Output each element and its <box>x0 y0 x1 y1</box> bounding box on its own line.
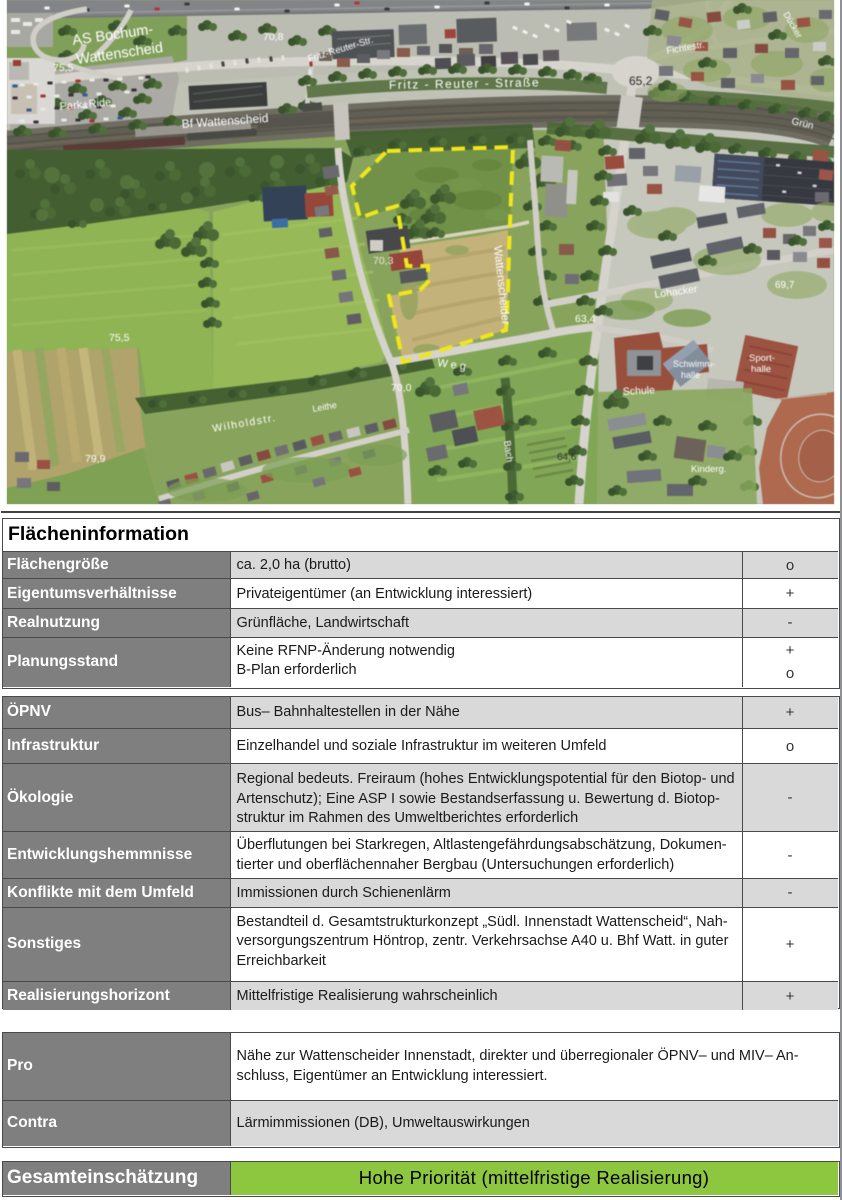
svg-text:75,5: 75,5 <box>53 62 74 74</box>
svg-text:Schule: Schule <box>623 384 656 398</box>
svg-text:70,0: 70,0 <box>391 382 412 394</box>
svg-text:Fritz - Reuter - Straße: Fritz - Reuter - Straße <box>389 75 540 92</box>
svg-text:Kinderg.: Kinderg. <box>691 464 726 475</box>
svg-text:70,3: 70,3 <box>373 255 394 267</box>
svg-text:75,5: 75,5 <box>109 332 130 344</box>
svg-text:79,9: 79,9 <box>85 453 106 465</box>
svg-text:halle: halle <box>751 364 771 375</box>
svg-text:65,2: 65,2 <box>629 74 653 88</box>
svg-text:69,7: 69,7 <box>775 280 795 291</box>
svg-text:64,6: 64,6 <box>557 452 577 463</box>
svg-text:Sport-: Sport- <box>749 353 775 364</box>
svg-text:63,4: 63,4 <box>575 313 596 325</box>
svg-text:70,8: 70,8 <box>263 31 284 43</box>
svg-text:halle: halle <box>681 370 700 380</box>
svg-text:Schwimm-: Schwimm- <box>673 359 715 369</box>
